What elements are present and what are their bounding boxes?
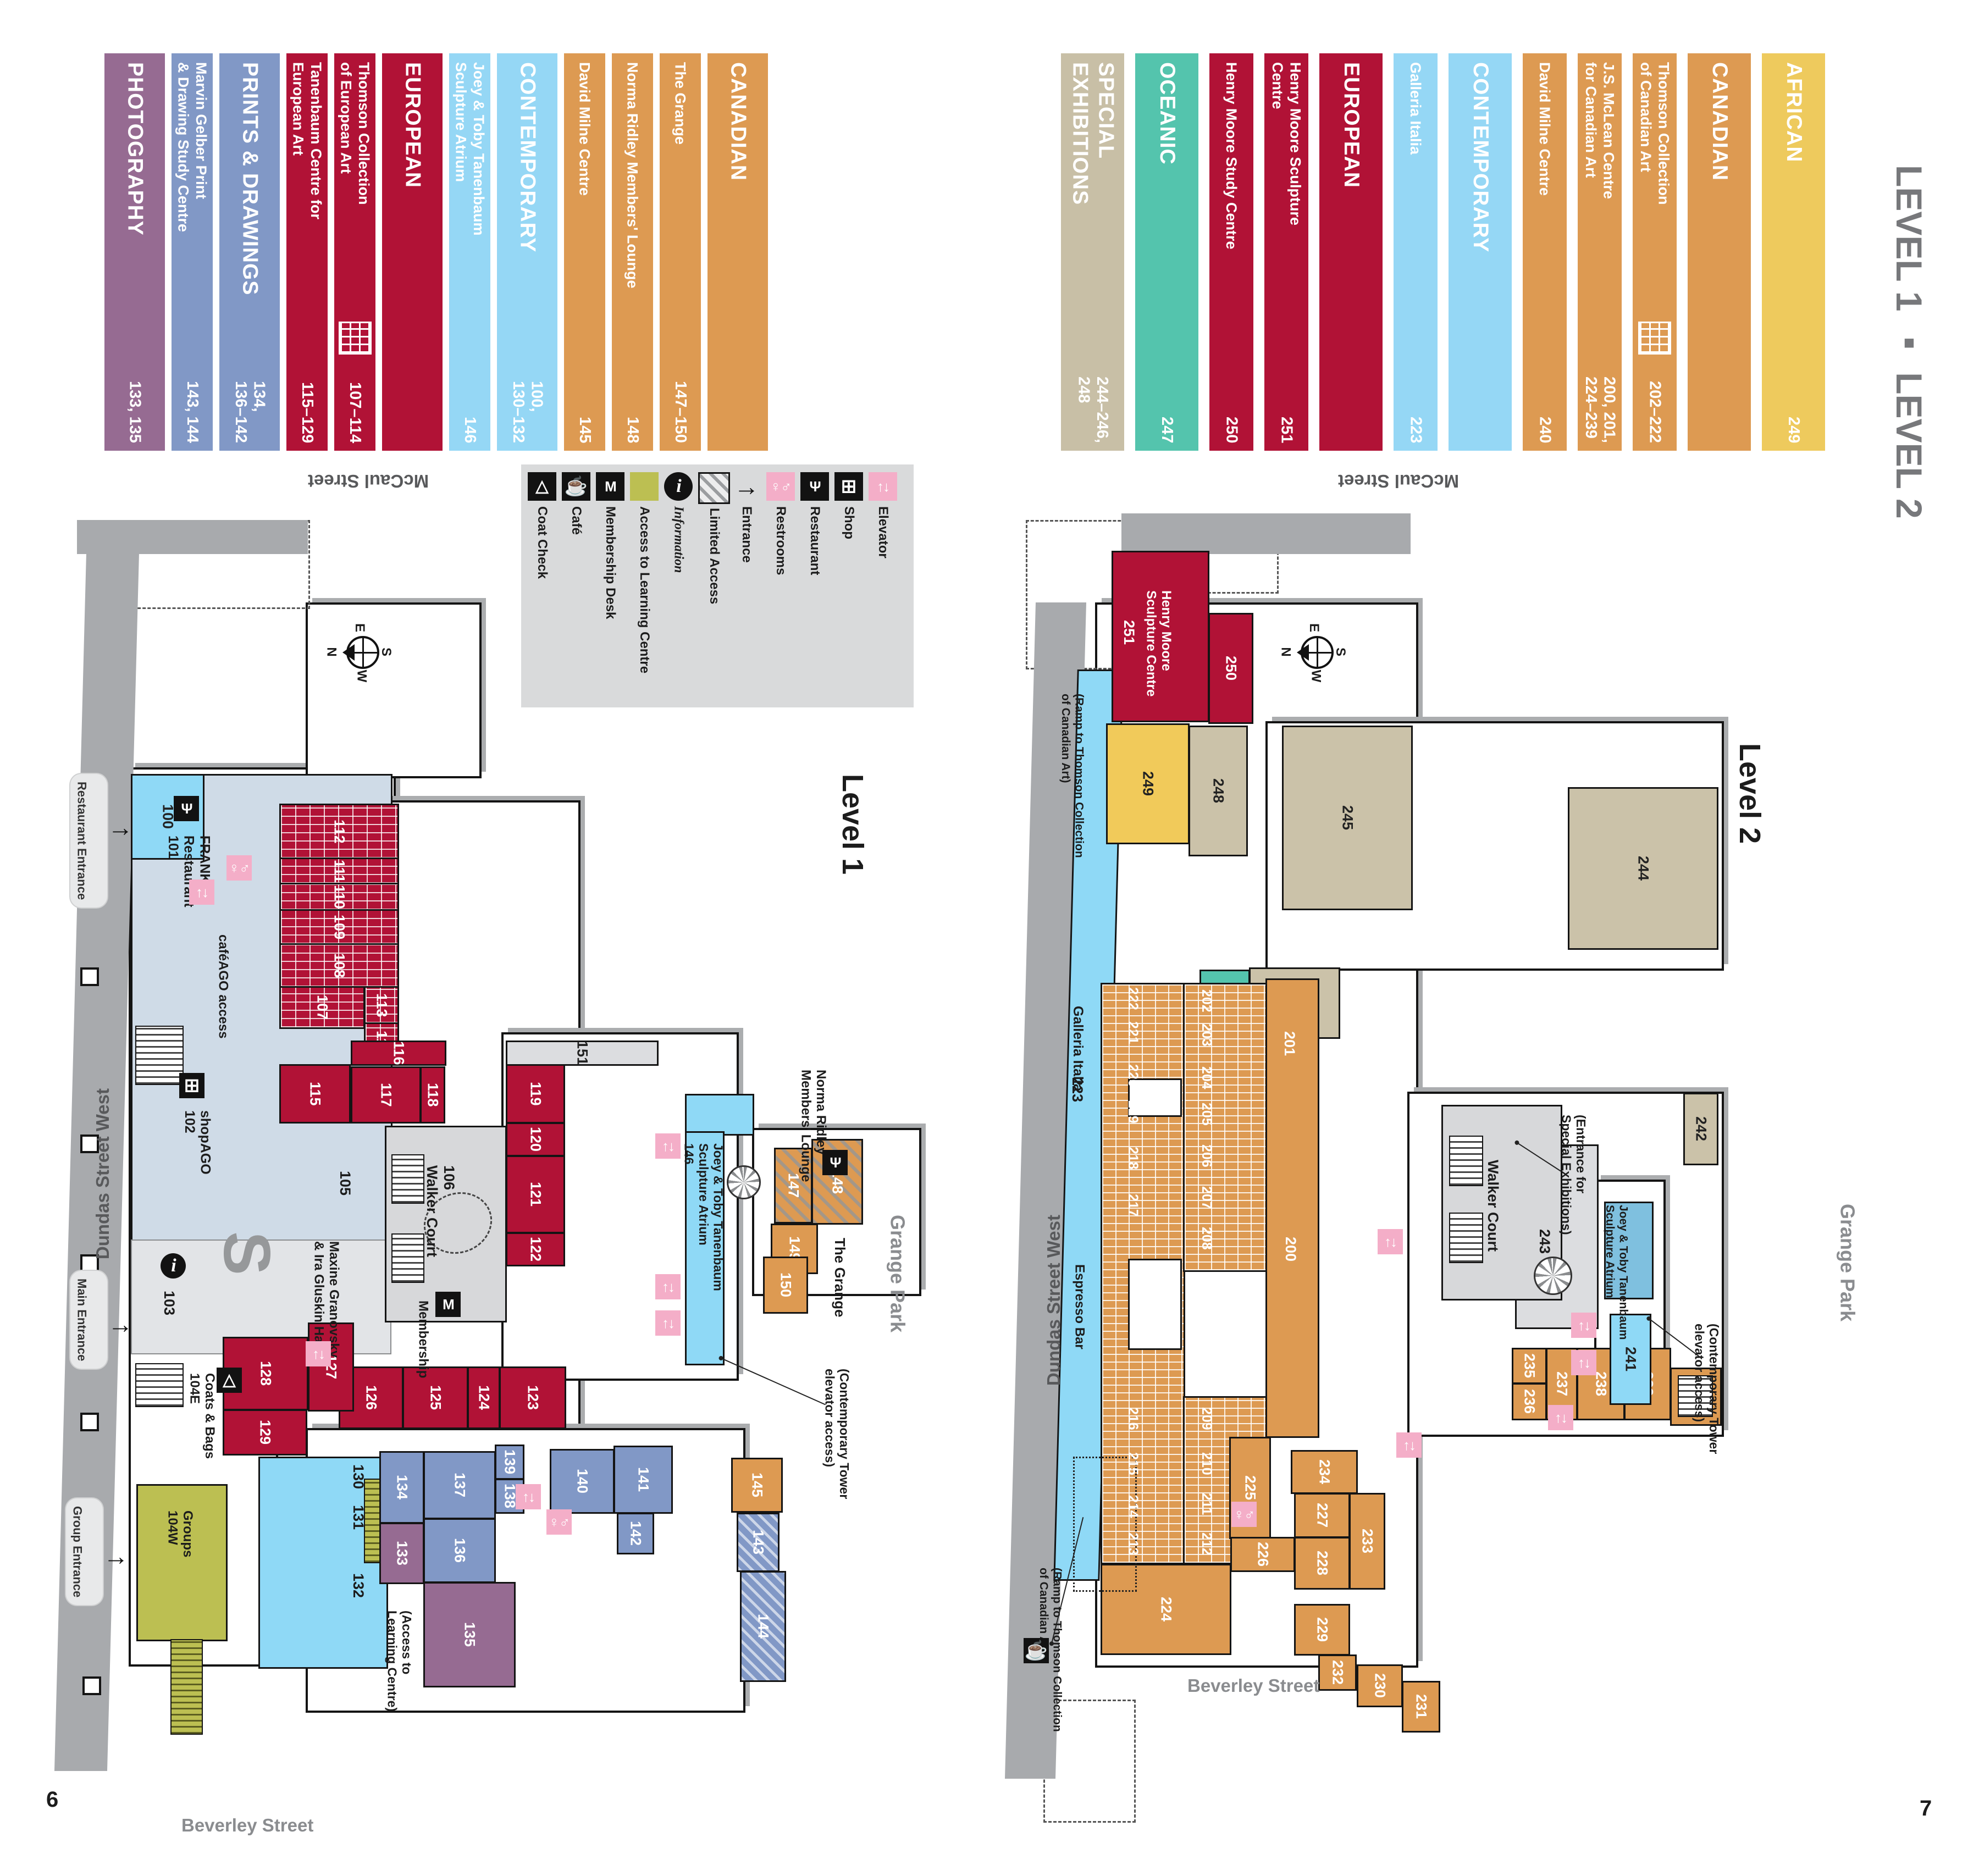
- legend-bar-rooms: 244–246, 248: [1074, 377, 1111, 443]
- plan-icon: ↑↓: [655, 1133, 681, 1159]
- room: [135, 1363, 184, 1407]
- plan-label: Espresso Bar: [1072, 1264, 1102, 1349]
- legend-bar-rooms: 148: [623, 417, 642, 443]
- plan-icon: →: [108, 1311, 133, 1337]
- room: 113: [364, 986, 399, 1025]
- leader-line: [721, 1358, 826, 1405]
- legend-bar: EUROPEAN: [1319, 53, 1383, 451]
- plan-label: 215: [1125, 1452, 1157, 1475]
- key-icon-glyph: ↑↓: [877, 479, 889, 494]
- room: 118: [420, 1066, 445, 1124]
- plan-label: Restaurant Entrance: [70, 774, 107, 907]
- gallery-map-spread: LEVEL 1 ▪ LEVEL 2 PHOTOGRAPHY 133, 135 M…: [0, 0, 1979, 1876]
- key-icon-glyph: ☕: [565, 477, 588, 496]
- room: 134: [379, 1451, 424, 1524]
- room-number: 244: [1635, 856, 1652, 881]
- legend-bar-label: EUROPEAN: [1338, 62, 1364, 188]
- room-number: 137: [451, 1473, 468, 1497]
- key-item-icon: ☕ Café: [562, 472, 590, 501]
- compass-east: E: [1306, 623, 1322, 632]
- room: 108: [279, 943, 399, 988]
- room: 248: [1188, 726, 1248, 856]
- plan-icon: ♀♂: [1231, 1502, 1257, 1527]
- plan-icon-glyph: →: [103, 1543, 129, 1569]
- plan-label: 106 Walker Court: [423, 1165, 474, 1257]
- compass-north: N: [1278, 647, 1293, 656]
- room: 231: [1402, 1681, 1440, 1733]
- plan-label-text: 208: [1199, 1227, 1214, 1250]
- plan-icon: ↑↓: [306, 1341, 331, 1366]
- room: [135, 1026, 184, 1085]
- room-number: 118: [424, 1083, 441, 1107]
- key-icon-glyph: Ψ: [809, 479, 820, 494]
- room: 109: [279, 909, 399, 945]
- key-item-icon: ↑↓ Elevator: [869, 472, 897, 501]
- legend-bar: PRINTS & DRAWINGS 134, 136–142: [219, 53, 280, 451]
- plan-icon-glyph: ⊞: [184, 1076, 200, 1095]
- room-number: 140: [574, 1469, 591, 1493]
- room: 232: [1318, 1654, 1357, 1691]
- plan-label-text: Coats & Bags 104E: [187, 1373, 218, 1459]
- room-number: 231: [1413, 1694, 1430, 1719]
- room-number: 145: [749, 1473, 766, 1497]
- plan-label: 213: [1125, 1532, 1157, 1556]
- legend-bar-label: J.S. McLean Centre for Canadian Art: [1582, 62, 1618, 199]
- legend-bar: Henry Moore Study Centre 250: [1209, 53, 1253, 451]
- legend-bar: EUROPEAN: [382, 53, 443, 451]
- plan-icon: M: [435, 1292, 461, 1317]
- plan-label: 211: [1198, 1493, 1230, 1515]
- room-number: 109: [331, 915, 348, 939]
- room-number: 151: [574, 1041, 591, 1065]
- plan-label-text: Joey & Toby Tanenbaum Sculpture Atrium 1…: [682, 1143, 725, 1291]
- plan-label: 105: [336, 1171, 371, 1196]
- compass-north: N: [324, 647, 339, 656]
- room-number: 108: [331, 953, 348, 978]
- plan-label: 223: [1069, 1077, 1103, 1102]
- page-title: LEVEL 1 ▪ LEVEL 2: [1888, 165, 1930, 519]
- room: 135: [423, 1582, 516, 1687]
- room-number: 150: [777, 1272, 794, 1297]
- legend-bar-label: Henry Moore Study Centre: [1223, 62, 1240, 250]
- compass-circle: [1301, 636, 1334, 669]
- room-number: 119: [527, 1082, 544, 1106]
- room-number: 233: [1359, 1529, 1376, 1553]
- key-icon-glyph: i: [676, 477, 680, 496]
- room: [136, 1484, 228, 1641]
- plan-icon-glyph: ↑↓: [1578, 1355, 1590, 1370]
- plan-icon: ↑↓: [1378, 1229, 1403, 1254]
- plan-label: 205: [1198, 1103, 1230, 1126]
- legend-bar-label: Thomson Collection of Canadian Art: [1637, 62, 1673, 205]
- room-number: 129: [257, 1420, 274, 1445]
- plan-label-text: Level 2: [1733, 743, 1766, 844]
- plan-label-text: (Contemporary Tower elevator access): [1692, 1324, 1721, 1454]
- room: 229: [1294, 1604, 1350, 1656]
- plan-icon-glyph: →: [108, 1311, 133, 1337]
- room: 122: [506, 1232, 565, 1266]
- room-number: 245: [1339, 805, 1356, 830]
- room: [1128, 1259, 1182, 1350]
- legend-bar-rooms: 143, 144: [183, 381, 201, 443]
- key-icon-glyph: →: [734, 474, 759, 499]
- room-number: 230: [1372, 1673, 1389, 1698]
- plan-label: 221: [1125, 1021, 1157, 1044]
- plan-label: 131: [350, 1505, 384, 1530]
- room: 144: [740, 1571, 786, 1682]
- plan-label-text: Beverley Street: [181, 1815, 313, 1835]
- room-number: 134: [394, 1475, 411, 1499]
- plan-label: 6: [46, 1788, 58, 1812]
- plan-label: 204: [1198, 1066, 1230, 1089]
- plan-label-text: 217: [1125, 1194, 1141, 1217]
- room-number: 122: [527, 1237, 544, 1261]
- plan-label-text: 210: [1199, 1452, 1214, 1475]
- legend-bar: Galleria Italia 223: [1394, 53, 1438, 451]
- plan-label-text: Walker Court: [1485, 1160, 1501, 1252]
- plan-label-text: Beverley Street: [1187, 1675, 1319, 1696]
- room-number: 117: [378, 1083, 395, 1107]
- plan-label-text: shopAGO 102: [182, 1110, 213, 1175]
- plan-label-text: 106 Walker Court: [424, 1165, 457, 1257]
- room: 236: [1512, 1383, 1547, 1420]
- room: 228: [1294, 1537, 1350, 1590]
- legend-bar-label: CONTEMPORARY: [1467, 62, 1493, 252]
- room-number: 236: [1521, 1389, 1538, 1414]
- room: 244: [1568, 787, 1718, 950]
- plan-label-text: (Access to Learning Centre): [385, 1611, 413, 1712]
- plan-label: 212: [1198, 1532, 1230, 1556]
- room: 137: [423, 1451, 496, 1519]
- room-number: 141: [635, 1467, 652, 1492]
- plan-label-text: 218: [1125, 1147, 1141, 1170]
- legend-bar-rooms: 251: [1277, 417, 1295, 443]
- compass-west: W: [353, 670, 369, 683]
- plan-label: Dundas Street West: [1022, 1215, 1064, 1386]
- legend-bar-label: Galleria Italia: [1407, 62, 1424, 154]
- plan-label: 218: [1125, 1147, 1157, 1170]
- legend-bar: Tanenbaum Centre for European Art 115–12…: [286, 53, 328, 451]
- room-number: 250: [1223, 656, 1240, 680]
- plan-icon: ↑↓: [1571, 1350, 1596, 1375]
- legend-bar: OCEANIC 247: [1135, 53, 1198, 451]
- key-item-label: Limited Access: [706, 508, 722, 604]
- plan-icon: ↑↓: [189, 879, 214, 905]
- plan-label-text: (Ramp to Thomson Collection of Canadian …: [1059, 694, 1085, 858]
- plan-icon-glyph: Ψ: [181, 801, 191, 816]
- plan-icon-glyph: Ψ: [830, 1155, 840, 1170]
- key-icon-glyph: ♀♂: [770, 479, 792, 494]
- plan-label-text: 200: [1283, 1237, 1299, 1261]
- plan-icon-glyph: M: [443, 1297, 454, 1311]
- key-item-icon: Ψ Restaurant: [800, 472, 829, 501]
- plan-label: 103: [161, 1291, 195, 1315]
- plan-icon: ↑↓: [1571, 1313, 1596, 1338]
- room: 115: [279, 1064, 351, 1124]
- key-item-icon: M Membership Desk: [596, 472, 624, 501]
- legend-bar: David Milne Centre 145: [564, 53, 605, 451]
- room: 143: [737, 1513, 780, 1572]
- plan-label: (Access to Learning Centre): [385, 1611, 428, 1712]
- plan-label-text: 203: [1199, 1023, 1214, 1047]
- plan-label-text: 251: [1121, 620, 1137, 645]
- room: 141: [613, 1446, 673, 1514]
- plan-label-text: 211: [1199, 1493, 1214, 1515]
- legend-bar-label: Joey & Toby Tanenbaum Sculpture Atrium: [452, 62, 488, 236]
- legend-bar-rooms: 145: [576, 417, 594, 443]
- legend-bar-label: Henry Moore Sculpture Centre: [1269, 62, 1304, 225]
- room: 111: [279, 857, 399, 885]
- plan-icon-glyph: ☕: [1025, 1641, 1048, 1660]
- plan-label-text: S: [210, 1231, 284, 1275]
- plan-label-text: 205: [1199, 1103, 1214, 1126]
- room: 233: [1349, 1493, 1385, 1590]
- plan-label-text: Grange Park: [1836, 1204, 1859, 1321]
- plan-label-text: Group Entrance: [70, 1506, 84, 1597]
- plan-icon-glyph: △: [223, 1372, 235, 1388]
- building-shell: [306, 602, 482, 778]
- plan-label-text: 204: [1199, 1066, 1214, 1089]
- plan-label: 206: [1198, 1144, 1230, 1167]
- room: 123: [499, 1366, 566, 1429]
- plan-icon: ↑↓: [516, 1484, 541, 1509]
- room: [80, 967, 99, 986]
- plan-label: 130: [350, 1464, 384, 1489]
- plan-icon-glyph: ↑↓: [196, 885, 208, 899]
- legend-bar-label: Marvin Gelber Print & Drawing Study Cent…: [174, 62, 210, 232]
- plan-label: Walker Court: [1484, 1160, 1518, 1252]
- plan-label: 214: [1125, 1495, 1157, 1518]
- plan-label-text: Restaurant Entrance: [75, 782, 89, 900]
- hatch-pattern-icon: [339, 322, 372, 355]
- plan-label: 207: [1198, 1186, 1230, 1209]
- plan-icon: ♀♂: [226, 855, 252, 881]
- room: [170, 1639, 203, 1735]
- plan-label-text: 202: [1199, 989, 1214, 1012]
- plan-label-text: Main Entrance: [75, 1279, 89, 1361]
- plan-icon: △: [217, 1368, 242, 1393]
- room: 151: [506, 1041, 659, 1066]
- room: 121: [506, 1155, 565, 1233]
- plan-label-text: (Contemporary Tower elevator access): [822, 1369, 851, 1499]
- room-number: 142: [627, 1521, 644, 1546]
- room: 119: [506, 1064, 565, 1124]
- legend-bar-rooms: 247: [1158, 417, 1176, 443]
- plan-label-text: 216: [1125, 1407, 1141, 1430]
- key-item-label: Elevator: [875, 506, 891, 558]
- room-number: 237: [1554, 1371, 1571, 1396]
- plan-label-text: 206: [1199, 1144, 1214, 1167]
- room-number: 126: [363, 1385, 380, 1410]
- plan-label-text: 212: [1199, 1532, 1214, 1556]
- compass-west: W: [1308, 670, 1323, 683]
- legend-bar-rooms: 146: [461, 417, 479, 443]
- plan-label: Grange Park: [1836, 1204, 1882, 1321]
- legend-bar: David Milne Centre 240: [1523, 53, 1567, 451]
- plan-label-text: 219: [1125, 1100, 1141, 1124]
- room-number: 112: [331, 820, 348, 844]
- room: 110: [279, 883, 399, 911]
- compass-circle: [346, 636, 379, 669]
- plan-label-text: Grange Park: [886, 1215, 909, 1332]
- key-item-icon: Access to Learning Centre: [630, 472, 659, 501]
- room: 227: [1294, 1493, 1350, 1538]
- room-number: 226: [1254, 1542, 1272, 1567]
- room-number: 115: [307, 1082, 324, 1106]
- legend-bar: Marvin Gelber Print & Drawing Study Cent…: [172, 53, 213, 451]
- room-number: 135: [461, 1622, 478, 1647]
- plan-label-text: 221: [1125, 1021, 1141, 1044]
- plan-label: Group Entrance: [66, 1498, 103, 1605]
- key-icon-glyph: M: [605, 479, 616, 494]
- legend-bar-label: PHOTOGRAPHY: [122, 62, 148, 236]
- room-number: 143: [750, 1530, 767, 1554]
- room: 235: [1512, 1348, 1547, 1384]
- plan-label-text: Dundas Street West: [92, 1088, 113, 1259]
- room: 133: [379, 1523, 424, 1584]
- room-number: 121: [527, 1182, 544, 1207]
- plan-label-text: 103: [161, 1291, 178, 1315]
- legend-bar-label: EUROPEAN: [400, 62, 425, 188]
- plan-label: Level 2: [1733, 743, 1801, 844]
- plan-icon-glyph: ↑↓: [312, 1347, 324, 1361]
- room-number: 144: [755, 1614, 772, 1639]
- key-item-label: Shop: [841, 506, 856, 539]
- room: 234: [1291, 1450, 1358, 1494]
- key-item-icon: △ Coat Check: [528, 472, 556, 501]
- plan-icon: ↑↓: [1396, 1432, 1422, 1458]
- legend-bar-label: CANADIAN: [1706, 62, 1732, 181]
- key-item-icon: i Information: [664, 472, 693, 501]
- compass-rose: N E S W: [335, 627, 385, 676]
- legend-bar-label: AFRICAN: [1781, 62, 1806, 162]
- plan-label: McCaul Street: [1338, 471, 1459, 491]
- plan-label-text: 213: [1125, 1532, 1141, 1556]
- plan-label: Joey & Toby Tanenbaum Sculpture Atrium: [1603, 1205, 1643, 1340]
- room-number: 113: [373, 993, 390, 1017]
- plan-icon-glyph: i: [171, 1257, 175, 1275]
- plan-label-text: caféAGO access: [216, 934, 231, 1038]
- plan-label-text: Dundas Street West: [1043, 1215, 1064, 1386]
- plan-icon: ♀♂: [546, 1509, 572, 1535]
- plan-label-text: Groups 104W: [165, 1510, 196, 1557]
- room-number: 224: [1158, 1597, 1175, 1622]
- room: [82, 1676, 101, 1695]
- room: 117: [351, 1066, 421, 1124]
- legend-bar: CANADIAN: [707, 53, 768, 451]
- legend-bar: Joey & Toby Tanenbaum Sculpture Atrium 1…: [449, 53, 490, 451]
- room-number: 120: [527, 1127, 544, 1152]
- plan-label: (Entrance for Special Exhibitions): [1559, 1115, 1602, 1235]
- room: 116: [351, 1041, 446, 1066]
- room: [1121, 513, 1411, 554]
- legend-bar-rooms: 250: [1222, 417, 1240, 443]
- legend-bar: PHOTOGRAPHY 133, 135: [104, 53, 165, 451]
- compass-east: E: [352, 623, 367, 632]
- room: 129: [223, 1409, 307, 1456]
- room: 150: [763, 1257, 808, 1314]
- key-item-label: Access to Learning Centre: [637, 506, 652, 673]
- legend-bar: AFRICAN 249: [1762, 53, 1825, 451]
- legend-bar-rooms: 107–114: [346, 382, 364, 443]
- plan-icon-glyph: →: [108, 815, 133, 840]
- plan-label: 209: [1198, 1407, 1230, 1430]
- plan-label-text: 7: [1920, 1796, 1932, 1820]
- plan-label: 222: [1125, 987, 1157, 1010]
- key-icon-glyph: ⊞: [841, 477, 857, 496]
- plan-label: Dundas Street West: [71, 1088, 113, 1259]
- room: [391, 1154, 424, 1204]
- key-item-label: Entrance: [739, 506, 754, 563]
- plan-label-text: 243: [1536, 1229, 1553, 1254]
- legend-bar: J.S. McLean Centre for Canadian Art 200,…: [1578, 53, 1622, 451]
- plan-icon: i: [161, 1253, 186, 1279]
- plan-label: S: [209, 1231, 361, 1275]
- room-number: 249: [1140, 771, 1157, 796]
- room: 139: [495, 1445, 524, 1480]
- room-number: 242: [1693, 1116, 1710, 1141]
- plan-label-text: (Entrance for Special Exhibitions): [1559, 1115, 1588, 1235]
- plan-label-text: 215: [1125, 1452, 1141, 1475]
- plan-label: 208: [1198, 1227, 1230, 1250]
- room: [391, 1233, 424, 1283]
- plan-icon: ☕: [1024, 1638, 1049, 1663]
- legend-bar-label: CANADIAN: [725, 62, 751, 181]
- plan-label-text: 131: [350, 1505, 367, 1530]
- legend-bar-rooms: 223: [1406, 417, 1424, 443]
- room-number: 225: [1242, 1475, 1259, 1500]
- room-number: 228: [1314, 1551, 1331, 1575]
- key-item-label: Information: [671, 506, 686, 573]
- plan-icon-glyph: ↑↓: [1403, 1438, 1415, 1452]
- legend-bar: Thomson Collection of European Art 107–1…: [334, 53, 375, 451]
- room-number: 110: [331, 885, 348, 909]
- room-number: 232: [1329, 1660, 1346, 1685]
- plan-label: 203: [1198, 1023, 1230, 1047]
- legend-bar-label: PRINTS & DRAWINGS: [237, 62, 263, 295]
- room-number: 124: [476, 1385, 493, 1410]
- key-item-label: Café: [568, 506, 584, 535]
- plan-icon: Ψ: [174, 796, 199, 821]
- room-number: 123: [524, 1385, 541, 1410]
- room: 242: [1683, 1093, 1718, 1165]
- compass-south: S: [378, 648, 394, 656]
- legend-bar: Norma Ridley Members' Lounge 148: [612, 53, 653, 451]
- legend-bar-label: OCEANIC: [1154, 62, 1180, 165]
- plan-label-text: 209: [1199, 1407, 1214, 1430]
- legend-bar-rooms: 147–150: [671, 381, 689, 443]
- room-number: 125: [427, 1385, 444, 1410]
- plan-label: The Grange: [831, 1238, 864, 1317]
- legend-bar-label: SPECIAL EXHIBITIONS: [1067, 62, 1119, 205]
- key-item-icon: Limited Access: [698, 472, 730, 504]
- plan-icon-glyph: ♀♂: [1234, 1507, 1255, 1522]
- legend-bar: CONTEMPORARY: [1449, 53, 1512, 451]
- room: 120: [506, 1122, 565, 1156]
- legend-bar-rooms: 134, 136–142: [231, 381, 268, 443]
- legend-bar-rooms: 100, 130–132: [509, 381, 546, 443]
- legend-bar-rooms: 249: [1784, 417, 1803, 443]
- room-number: 229: [1314, 1617, 1331, 1642]
- plan-label-text: 6: [46, 1788, 58, 1812]
- room-number: 241: [1622, 1347, 1639, 1371]
- plan-label: 132: [350, 1573, 384, 1598]
- map-key: △ Coat Check ☕ Café M Membership Desk Ac…: [521, 464, 914, 707]
- plan-icon-glyph: ↑↓: [1384, 1235, 1396, 1249]
- room: 136: [423, 1518, 496, 1583]
- plan-label-text: Espresso Bar: [1073, 1264, 1087, 1349]
- plan-label-text: Membership: [416, 1301, 431, 1378]
